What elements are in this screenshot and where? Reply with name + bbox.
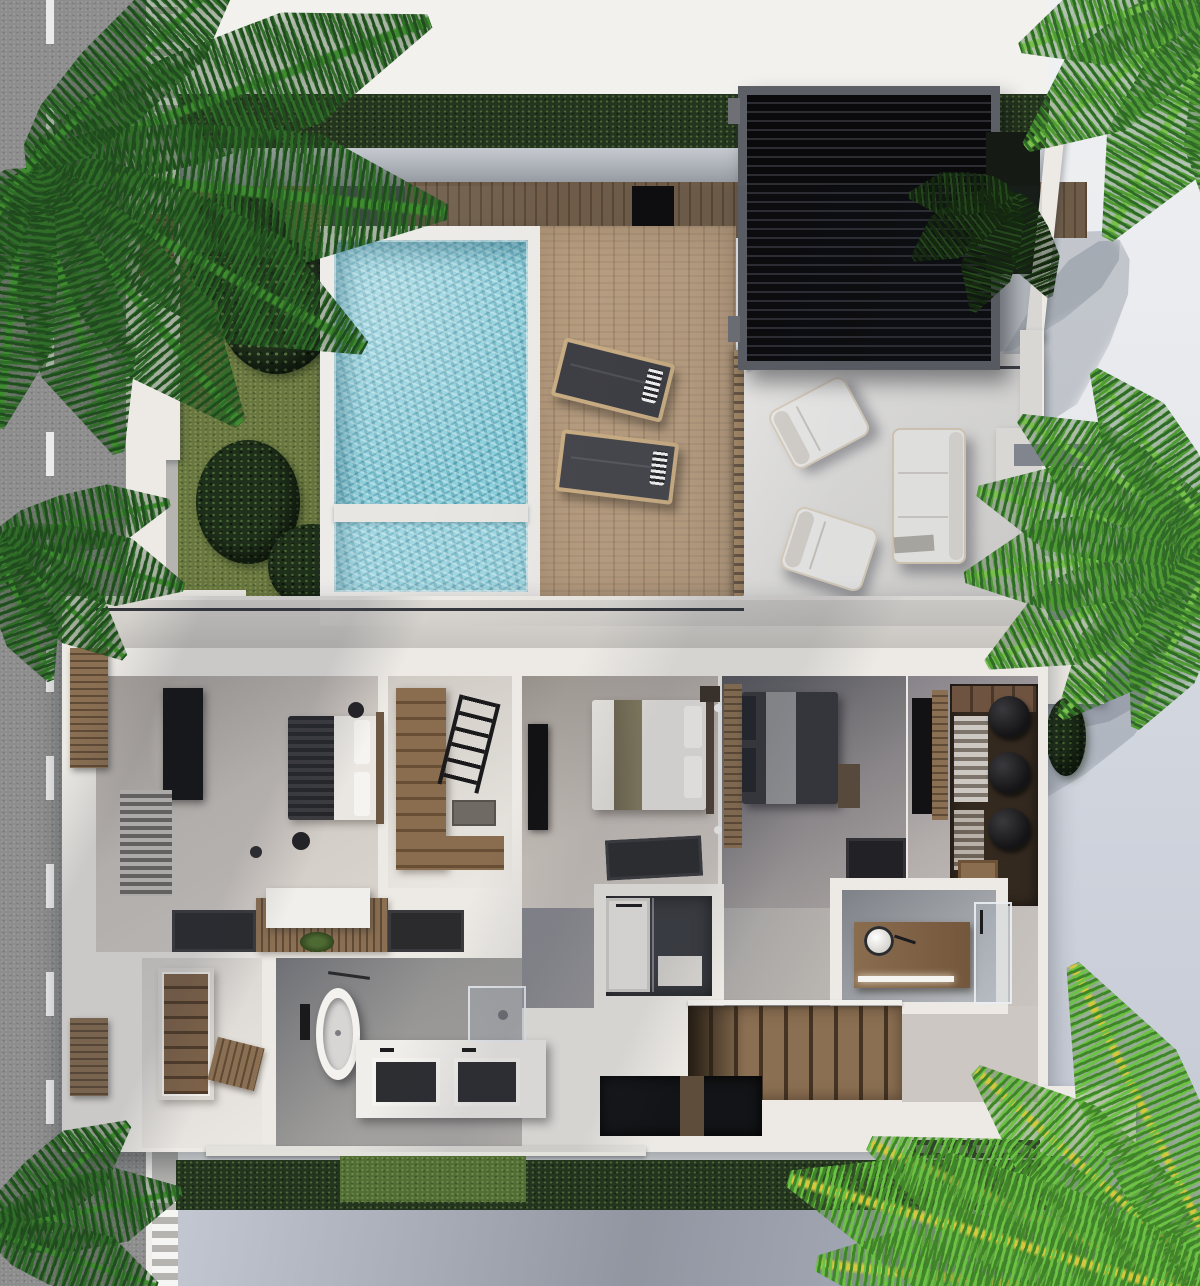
bedroom3-rug [846,838,906,882]
bedroom2-rug [605,836,703,881]
hall-right-of-stairs [902,1006,1038,1102]
nightstand-wood [838,764,860,808]
timber-fin-screen-west [70,648,108,768]
bedroom2-floor [522,676,718,908]
tv-panel [912,698,932,814]
tv-panel [528,724,548,830]
vanity-light-strip [858,976,954,982]
bed-dark [742,692,838,804]
bed-headboard [376,712,384,824]
shower-room [594,884,724,1008]
pergola-roof [738,86,1000,370]
sliding-door-track [96,608,744,611]
pool-ledge [334,504,528,522]
sitting-rug [388,910,464,952]
hat-box-round [988,696,1030,738]
lounger-seam [570,363,648,384]
closet-shelving-bottom [396,836,504,870]
shower-fixture [980,910,983,934]
hat-box-round [988,752,1030,794]
floor-spot [250,846,262,858]
pergola-bracket [728,316,740,342]
sitting-rug [172,910,256,952]
bed-pillows [684,706,702,748]
bed-pillows-dark [742,696,756,740]
floor-lamp [714,826,722,834]
shower-tray [606,898,650,992]
vanity-sink-inset [372,1058,440,1106]
timber-fin-screen-west-lower [70,1018,108,1096]
floor-lamp [714,704,722,712]
faucet [462,1048,476,1052]
planter-wall-west-lower [126,456,166,604]
towel-rail [328,971,370,980]
master-bathroom-floor [276,958,522,1148]
vent-strip [912,1140,1054,1158]
lawn-south [340,1156,526,1202]
bedroom3-floor [722,676,906,908]
stair-guard-rail [688,1000,902,1005]
south-pavement [178,1204,1200,1286]
wall-mounted-filler [300,1004,310,1040]
shower-fixture [616,904,642,907]
vanity-sink-inset [454,1058,520,1106]
hat-box-round [988,808,1030,850]
sofa-backrest [949,432,963,560]
headboard-slat-wall [724,684,742,848]
table-plant [300,932,334,952]
shower-drain [498,1010,508,1020]
planter-wall-west [126,148,180,460]
lounger-pillow [641,367,664,404]
walk-in-shower [468,986,526,1042]
bathroom-right [830,878,1008,1014]
timber-fin-screen-north [140,214,174,276]
east-planter-dark [986,132,1040,274]
lounger-seam [571,456,655,468]
hedge-south [176,1160,1048,1210]
walkin-closet-floor [388,676,512,888]
bed-runner [614,700,642,810]
closet-ladder [437,694,500,793]
slat-divider [932,690,948,820]
double-vanity [356,1040,546,1118]
garden-ficus [218,238,336,374]
side-table-round [292,832,310,850]
bed-sheet-band [766,692,796,804]
vessel-sink-round [864,926,894,956]
east-wall-jut-recess [1014,444,1102,466]
louver-shutter [120,790,172,896]
wardrobe [950,684,1038,906]
bed-blanket [288,716,334,820]
bath-mat [658,956,702,986]
bed-headboard [706,696,714,814]
closet-unit [158,968,214,1100]
master-bedroom-floor [96,676,378,952]
vent-slots [916,1145,1050,1153]
sofa-cushion-seam [898,516,948,518]
pergola-bracket [728,98,740,124]
bed-pillows [354,720,370,764]
faucet [380,1048,394,1052]
sofa-cushion-seam [898,472,948,474]
sofa-throw-blanket [893,535,934,554]
shower-glass-line [652,898,654,992]
building-corner-southeast [1040,1086,1136,1156]
folded-slat-screen [207,1037,264,1091]
console-table [266,888,370,928]
bed-master [288,716,378,820]
nightstand [700,686,720,702]
pool-shallow-tint [334,522,528,592]
closet-counter-items [452,800,496,826]
closet-room-floor [142,958,262,1148]
bed-guest [592,700,706,810]
south-eave [206,1146,646,1156]
outdoor-sofa [892,428,966,564]
dressing-room-floor [908,676,1038,908]
side-table-round [348,702,364,718]
hanging-clothes [954,716,988,802]
closet-wood-shelves [164,974,208,1094]
villa-floorplan-render [0,0,1200,1286]
tv-panel [163,688,203,800]
stairwell-wood-edge [680,1076,704,1136]
east-shrub [1046,698,1086,776]
tub-drain [335,1030,341,1036]
